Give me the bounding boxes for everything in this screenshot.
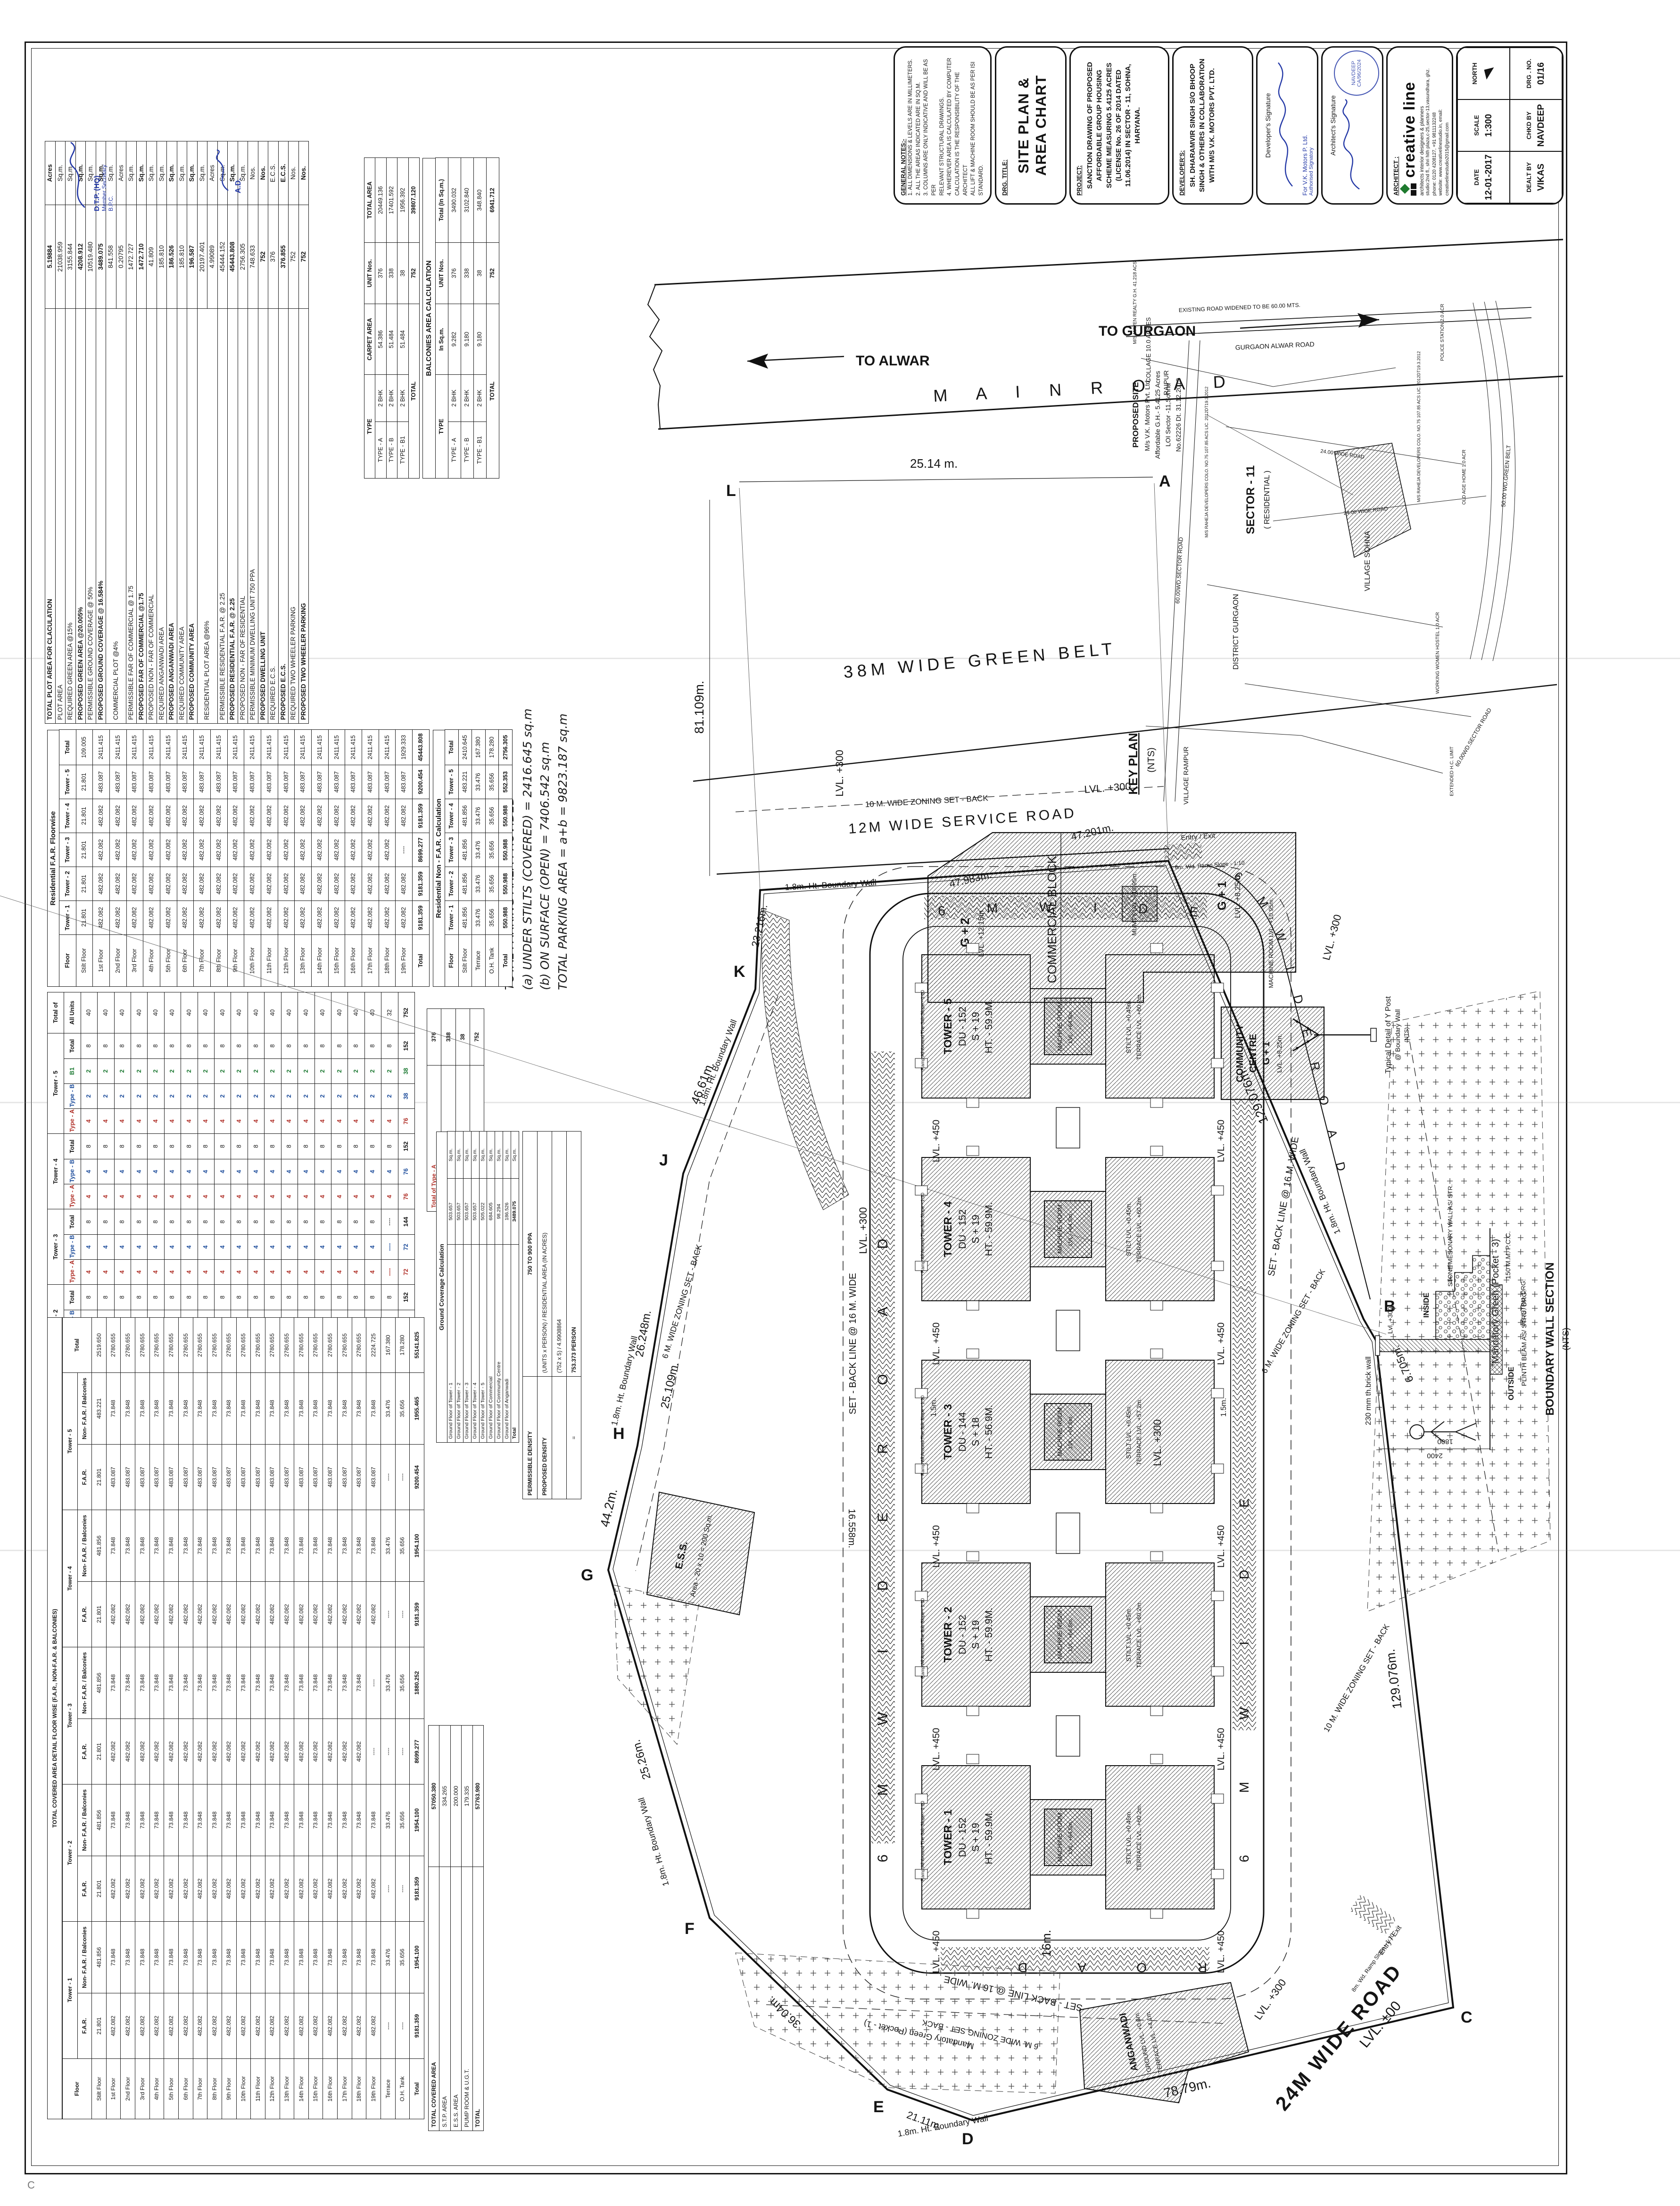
tower-label: LVL. +64.5m. [1067, 1213, 1074, 1246]
tower-label: DU - 144 [957, 1412, 968, 1452]
tower-label: HT. - 59.9M. [984, 1000, 994, 1053]
svg-text:D: D [962, 2130, 974, 2148]
svg-text:A: A [1159, 472, 1171, 490]
svg-text:44.2m.: 44.2m. [597, 1487, 620, 1528]
svg-text:COMMERCIAL BLOCK: COMMERCIAL BLOCK [1045, 855, 1059, 983]
tower-label: S + 18 [970, 1417, 981, 1446]
svg-text:LVL. +8.25m.: LVL. +8.25m. [1234, 874, 1242, 918]
site-plan: TO ALWAR TO GURGAON M A I N R O A D 38M … [0, 0, 1680, 2206]
svg-text:230 mm th.brick wall: 230 mm th.brick wall [1365, 1356, 1373, 1425]
svg-text:@ Boundary Wall: @ Boundary Wall [1394, 1009, 1401, 1061]
svg-text:38M WIDE GREEN BELT: 38M WIDE GREEN BELT [843, 639, 1117, 682]
tower-label: MACHINE ROOM [1056, 1002, 1063, 1051]
svg-text:1.5m.: 1.5m. [1220, 1398, 1228, 1417]
svg-text:KEY PLAN: KEY PLAN [1126, 733, 1140, 795]
svg-text:COMMUNITY: COMMUNITY [1235, 1024, 1245, 1082]
tower-label: HT. - 56.9M. [984, 1405, 994, 1459]
svg-text:BOUNDARY WALL SECTION: BOUNDARY WALL SECTION [1544, 1263, 1556, 1416]
svg-text:No.62226 Dt. 31.12.2013: No.62226 Dt. 31.12.2013 [1175, 378, 1182, 452]
svg-text:EXTENDED H.C. LIMIT: EXTENDED H.C. LIMIT [1449, 746, 1455, 796]
lvl-450-label: LVL. +450 [1216, 1931, 1226, 1973]
ramp-note: Ramp All Around The Stilt Slope - 1:10 [920, 1598, 926, 1678]
svg-text:150 M.M. P.C.C.: 150 M.M. P.C.C. [1504, 1231, 1512, 1279]
lvl-450-label: LVL. +450 [931, 1120, 942, 1162]
tower-label: LVL. +64.5m. [1067, 1618, 1074, 1652]
svg-text:POLICE STATION 2.0 ACR: POLICE STATION 2.0 ACR [1440, 304, 1445, 361]
lvl-450-label: LVL. +450 [931, 1322, 942, 1365]
tower-label: DU - 152 [957, 1615, 968, 1654]
svg-text:60.00WD.SECTOR ROAD: 60.00WD.SECTOR ROAD [1454, 707, 1493, 768]
svg-text:C: C [1461, 2008, 1473, 2026]
green-belt-service-road: 38M WIDE GREEN BELT 12M WIDE SERVICE ROA… [692, 456, 1557, 890]
tower-label: MACHINE ROOM [1056, 1205, 1063, 1254]
svg-text:LVL. +300: LVL. +300 [1252, 1977, 1288, 2022]
svg-text:( RESIDENTIAL ): ( RESIDENTIAL ) [1263, 471, 1271, 529]
svg-text:10 M. WIDE ZONING SET - BACK: 10 M. WIDE ZONING SET - BACK [1322, 1622, 1391, 1734]
tower-label: STILT LVL. +0.45m. [1125, 1810, 1132, 1865]
svg-text:6 M W I D E R O A D: 6 M W I D E R O A D [0, 0, 1217, 921]
svg-text:M/s V.K. Motors Pvt. Ltd.: M/s V.K. Motors Pvt. Ltd. [1143, 379, 1151, 451]
tower-label: DU - 152 [957, 1818, 968, 1857]
tower-label: STILT LVL. +0.45m. [1125, 1405, 1132, 1459]
tower-label: LVL. +64.5m. [1067, 1821, 1074, 1854]
tower-label: TOWER - 1 [942, 1809, 954, 1866]
svg-text:LVL. +300: LVL. +300 [834, 750, 845, 796]
svg-text:LVL. +300: LVL. +300 [857, 1207, 869, 1254]
tower-label: HT. - 59.9M. [984, 1608, 994, 1661]
tower-label: TERRACE LVL. +57.2m. [1135, 1398, 1142, 1465]
svg-text:25.26m.: 25.26m. [630, 1738, 654, 1781]
tower-label: MACHINE ROOM [1056, 1813, 1063, 1862]
tower-label: TERRACE LVL. +60.2m. [1135, 1196, 1142, 1263]
main-road: TO ALWAR TO GURGAON M A I N R O A D [648, 240, 1563, 429]
tower-label: TERRACE LVL. +60.2m. [1135, 993, 1142, 1060]
svg-text:6 M W I D E R O A D: 6 M W I D E R O A D [875, 1211, 891, 1862]
svg-text:CENTRE: CENTRE [1248, 1034, 1258, 1073]
tower-label: MACHINE ROOM [1056, 1610, 1063, 1659]
drawing-sheet: TO ALWAR TO GURGAON M A I N R O A D 38M … [0, 0, 1680, 2206]
svg-text:10 M. WIDE ZONING SET - BACK: 10 M. WIDE ZONING SET - BACK [865, 793, 989, 809]
community-centre: COMMUNITY CENTRE G + 1 LVL. +8.25m. [1221, 1007, 1324, 1099]
svg-text:2400: 2400 [1427, 1452, 1442, 1460]
svg-text:MUMTY LVL. +10.95m.: MUMTY LVL. +10.95m. [1131, 872, 1138, 936]
svg-text:26.248m.: 26.248m. [633, 1309, 654, 1358]
ramp-note: Ramp All Around The Stilt Slope - 1:10 [920, 990, 926, 1070]
svg-text:(NTS): (NTS) [1403, 1027, 1410, 1042]
svg-text:VILLAGE SOHNA: VILLAGE SOHNA [1364, 531, 1372, 591]
tower-block-2: TOWER - 2DU - 152S + 19HT. - 59.9M.MACHI… [915, 1552, 1226, 1770]
tower-label: STILT LVL. +0.45m. [1125, 1000, 1132, 1054]
svg-text:STONE MESONARY WALL AS/ STR.: STONE MESONARY WALL AS/ STR. [1447, 1184, 1454, 1287]
svg-text:L: L [726, 482, 736, 500]
svg-text:1.8m. Ht. Boundary Wall: 1.8m. Ht. Boundary Wall [637, 1796, 671, 1887]
svg-text:16.558m.: 16.558m. [846, 1509, 857, 1548]
tower-label: TOWER - 4 [942, 1201, 954, 1257]
svg-text:TO ALWAR: TO ALWAR [856, 353, 930, 369]
svg-text:F: F [685, 1920, 695, 1938]
svg-text:81.109m.: 81.109m. [692, 681, 706, 734]
svg-text:COLLAGE 10.0 ACRES: COLLAGE 10.0 ACRES [1145, 317, 1152, 382]
lvl-450-label: LVL. +450 [1216, 1525, 1226, 1568]
ess-block: E.S.S. Area - 20 x 10 = 200 Sq.m. [647, 1492, 754, 1615]
svg-text:MACHINE ROOM LVL. +10.95m.: MACHINE ROOM LVL. +10.95m. [1267, 898, 1274, 988]
tower-label: TOWER - 5 [942, 999, 954, 1055]
lvl-450-label: LVL. +450 [1216, 1728, 1226, 1770]
svg-text:(NTS): (NTS) [1146, 747, 1157, 772]
svg-text:PROPOSED SITE: PROPOSED SITE [1131, 382, 1140, 448]
tower-label: TOWER - 3 [942, 1404, 954, 1460]
svg-text:50.00 WD.GREEN BELT: 50.00 WD.GREEN BELT [1500, 445, 1512, 507]
lvl-450-label: LVL. +450 [931, 1728, 942, 1770]
anganwadi: ANGANWADI GROUND LVL. +0.6m. TERRACE LVL… [1080, 1983, 1249, 2103]
svg-text:G + 1: G + 1 [1261, 1041, 1272, 1065]
svg-text:OUTSIDE: OUTSIDE [1507, 1367, 1515, 1400]
svg-text:24M WIDE ROAD: 24M WIDE ROAD [1271, 1959, 1406, 2115]
svg-text:RAIPUR: RAIPUR [1162, 371, 1170, 396]
tower-label: DU - 152 [957, 1209, 968, 1249]
tower-label: HT. - 59.9M. [984, 1202, 994, 1256]
tower-label: STILT LVL. +0.45m. [1125, 1202, 1132, 1256]
svg-text:25.109m.: 25.109m. [658, 1361, 681, 1410]
svg-text:1.8m. Ht. Boundary Wall: 1.8m. Ht. Boundary Wall [610, 1335, 639, 1427]
svg-text:M/S RAHEJA DEVELOPERS COLO. NO: M/S RAHEJA DEVELOPERS COLO. NO.75 107.85… [1204, 387, 1209, 537]
svg-text:EXISTING ROAD WIDENED TO BE 60: EXISTING ROAD WIDENED TO BE 60.00 MTS. [1179, 302, 1301, 314]
svg-text:LVL. +300: LVL. +300 [1320, 913, 1344, 961]
tower-block-4: TOWER - 4DU - 152S + 19HT. - 59.9M.MACHI… [915, 1146, 1226, 1365]
tower-label: S + 19 [970, 1215, 981, 1243]
ramp-note: Ramp All Around The Stilt Slope - 1:10 [920, 1395, 926, 1476]
tower-label: LVL. +61.5m. [1067, 1415, 1074, 1449]
svg-text:LVL. +8.25m.: LVL. +8.25m. [1275, 1034, 1283, 1073]
svg-text:25.14 m.: 25.14 m. [910, 456, 958, 471]
svg-text:1.8m. Ht. Boundary Wall: 1.8m. Ht. Boundary Wall [785, 878, 877, 892]
lvl-450-label: LVL. +450 [1216, 1322, 1226, 1365]
tower-block-3: TOWER - 3DU - 144S + 18HT. - 56.9M.MACHI… [915, 1349, 1226, 1568]
svg-text:DISTRICT GURGAON: DISTRICT GURGAON [1232, 594, 1240, 670]
tower-label: HT. - 59.9M. [984, 1810, 994, 1864]
svg-text:Affordable G.H.- 5.4125 Acres: Affordable G.H.- 5.4125 Acres [1154, 371, 1161, 459]
svg-text:LVL. +300: LVL. +300 [1084, 780, 1132, 795]
svg-text:G: G [581, 1566, 593, 1584]
svg-text:VILLAGE RAMPUR: VILLAGE RAMPUR [1182, 747, 1190, 805]
svg-text:G + 2: G + 2 [959, 918, 972, 947]
tower-label: TERRACE LVL. +60.2m. [1135, 1601, 1142, 1668]
svg-text:OLD AGE HOME 1.0 ACR: OLD AGE HOME 1.0 ACR [1462, 450, 1467, 505]
lvl-450-label: LVL. +450 [1216, 1120, 1226, 1162]
tower-label: DU - 152 [957, 1007, 968, 1046]
tower-label: TERRACE LVL. +60.2m. [1135, 1804, 1142, 1871]
svg-text:G + 1: G + 1 [1216, 881, 1229, 910]
svg-text:K: K [734, 963, 745, 981]
tower-label: MACHINE ROOM [1056, 1407, 1063, 1456]
tower-label: STILT LVL. +0.45m. [1125, 1608, 1132, 1662]
svg-text:M/S RAHEJA DEVELOPERS COLO. NO: M/S RAHEJA DEVELOPERS COLO. NO.75 107.85… [1416, 351, 1421, 502]
svg-text:Typical Detail of Y Post: Typical Detail of Y Post [1384, 996, 1392, 1073]
svg-text:129.076m.: 129.076m. [1383, 1648, 1404, 1710]
tower-label: S + 19 [970, 1620, 981, 1649]
svg-text:J: J [659, 1151, 668, 1169]
tower-label: LVL. +64.5m. [1067, 1010, 1074, 1043]
svg-text:E: E [873, 2098, 884, 2116]
ramp-note: Ramp All Around The Stilt Slope - 1:10 [920, 1801, 926, 1881]
svg-text:60.00WD.SECTOR ROAD: 60.00WD.SECTOR ROAD [1174, 537, 1184, 604]
svg-text:1800: 1800 [1437, 1438, 1453, 1446]
svg-text:SET - BACK LINE @ 16 M. WIDE: SET - BACK LINE @ 16 M. WIDE [848, 1273, 858, 1414]
lvl-450-label: LVL. +450 [931, 1525, 942, 1568]
key-plan: PROPOSED SITE M/s V.K. Motors Pvt. Ltd. … [1126, 261, 1531, 805]
tower-label: S + 19 [970, 1012, 981, 1041]
mandatory-green: Mandatory Green (Pocket - 3) Mandatory G… [614, 991, 1550, 2093]
svg-text:6 M W I D E: 6 M W I D E [1237, 1470, 1251, 1862]
svg-text:Lvl. +300: Lvl. +300 [1386, 1307, 1394, 1334]
svg-text:M A I N R O A D: M A I N R O A D [933, 371, 1238, 405]
svg-text:GURGAON ALWAR ROAD: GURGAON ALWAR ROAD [1235, 340, 1315, 351]
svg-text:H: H [613, 1425, 625, 1443]
svg-text:INSIDE: INSIDE [1423, 1292, 1431, 1318]
svg-text:WORKING WOMEN HOSTEL 1.0 ACR: WORKING WOMEN HOSTEL 1.0 ACR [1435, 612, 1440, 694]
svg-text:SECTOR - 11: SECTOR - 11 [1244, 465, 1257, 534]
svg-text:M/S MAVEN REALTY G.H. 41.218 A: M/S MAVEN REALTY G.H. 41.218 ACS [1133, 261, 1138, 344]
svg-text:SET - BACK LINE @ 16 M. WIDE: SET - BACK LINE @ 16 M. WIDE [1266, 1136, 1301, 1277]
ramp-note: Ramp All Around The Stilt Slope - 1:10 [920, 1192, 926, 1273]
tower-label: S + 19 [970, 1823, 981, 1851]
tower-label: TOWER - 2 [942, 1607, 954, 1662]
svg-text:AS /STRU. DRG.: AS /STRU. DRG. [1520, 1279, 1527, 1326]
towers: TOWER - 5DU - 152S + 19HT. - 59.9M.MACHI… [915, 943, 1226, 1973]
svg-text:(NTS): (NTS) [1561, 1328, 1571, 1350]
svg-text:6 M. WIDE ZONING SET - BACK: 6 M. WIDE ZONING SET - BACK [1260, 1267, 1327, 1375]
